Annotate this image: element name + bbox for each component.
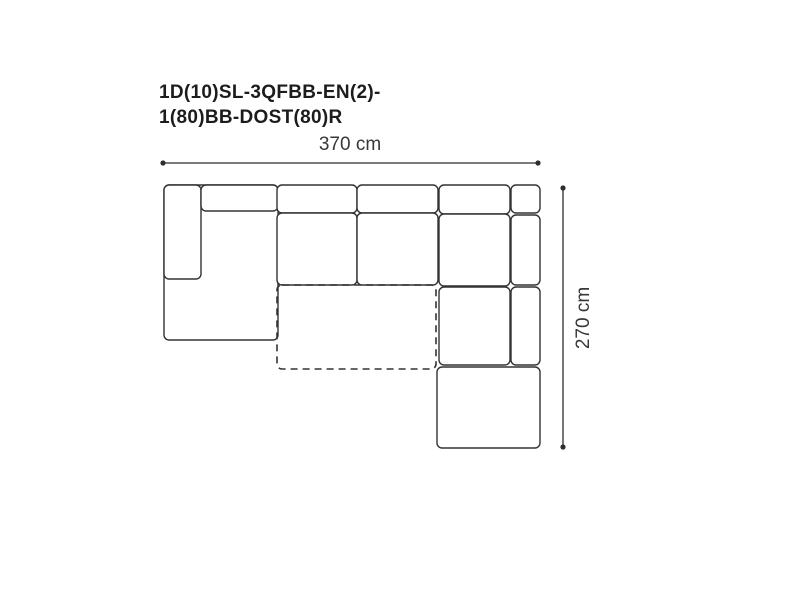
piece-middle-seat-1: [277, 213, 357, 285]
piece-middle-seat-2: [357, 213, 438, 285]
piece-right-arm-strip-upper: [511, 215, 540, 285]
sofa-outline-drawing: [0, 0, 800, 600]
piece-middle-backrest-2: [357, 185, 438, 213]
product-code-title: 1D(10)SL-3QFBB-EN(2)- 1(80)BB-DOST(80)R: [159, 80, 381, 130]
piece-left-armrest: [164, 185, 201, 279]
piece-ottoman: [437, 367, 540, 448]
product-code-line1: 1D(10)SL-3QFBB-EN(2)-: [159, 80, 381, 105]
width-dimension-label: 370 cm: [250, 134, 450, 156]
piece-right-corner-piece: [511, 185, 540, 213]
height-dimension-line: [560, 185, 565, 449]
height-dimension-label: 270 cm: [573, 243, 597, 393]
product-code-line2: 1(80)BB-DOST(80)R: [159, 105, 381, 130]
piece-right-arm-strip-lower: [511, 287, 540, 365]
piece-left-backrest: [201, 185, 278, 211]
piece-foldout-bed-outline: [277, 285, 436, 369]
piece-right-chaise-seat: [439, 287, 510, 365]
piece-middle-backrest-1: [277, 185, 357, 213]
sofa-dimension-diagram: 1D(10)SL-3QFBB-EN(2)- 1(80)BB-DOST(80)R …: [0, 0, 800, 600]
piece-right-backrest: [439, 185, 510, 214]
piece-right-seat: [439, 214, 510, 286]
width-dimension-line: [160, 160, 540, 165]
